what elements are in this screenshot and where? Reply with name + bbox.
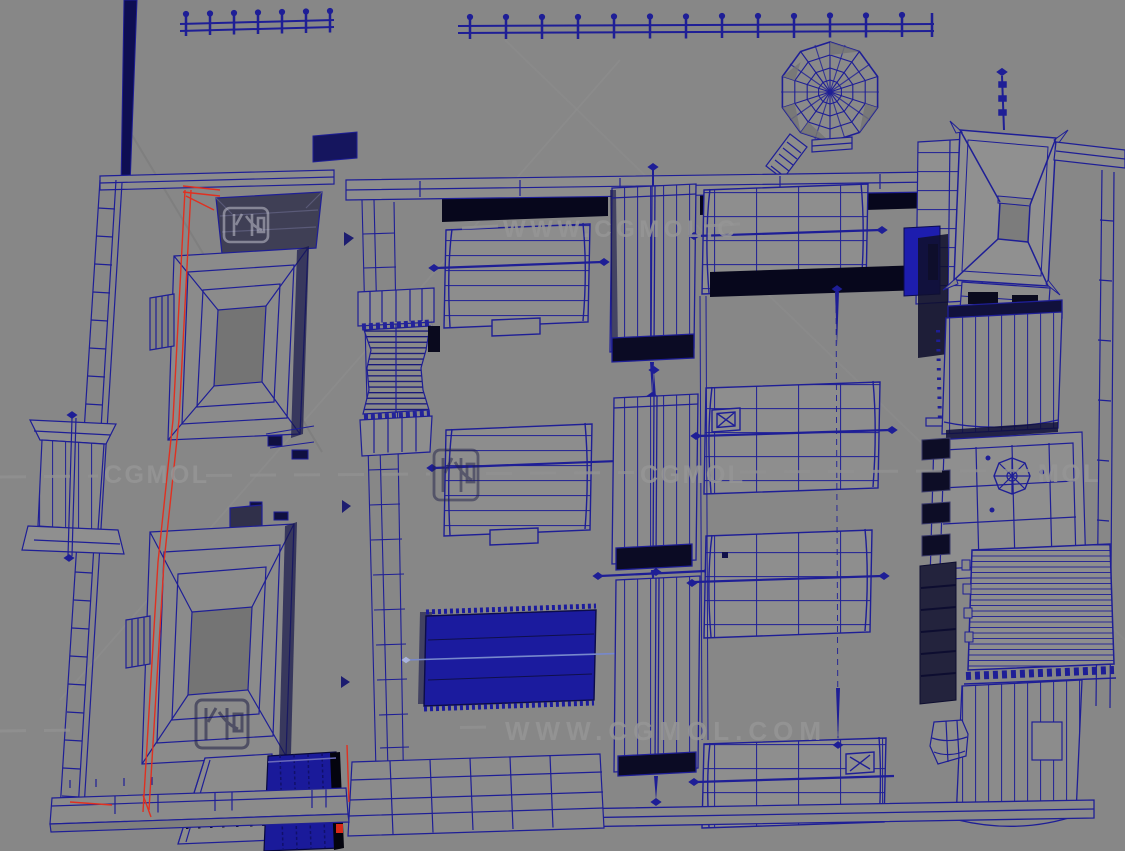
courtyard-building-lower[interactable] [126, 505, 297, 764]
porch-roof-upper[interactable] [216, 192, 322, 254]
octagon-feature [994, 458, 1030, 494]
east-hall-roof-3[interactable] [688, 529, 889, 638]
louver-roof[interactable] [962, 544, 1114, 670]
roof-bracket[interactable] [313, 132, 357, 162]
corner-turret[interactable] [930, 720, 968, 764]
3d-viewport[interactable]: WWW.CGMOL.C CGMOL CGMOL MOL WWW.CGMOL.CO… [0, 0, 1125, 851]
east-hall-roof-2[interactable] [692, 381, 897, 494]
roof-gate-box-2 [846, 752, 874, 774]
gable-roof-south[interactable] [614, 569, 700, 805]
small-block[interactable] [1032, 722, 1062, 760]
roof-gate-box [712, 408, 740, 432]
east-vertical-roof[interactable] [942, 300, 1062, 440]
dark-stair-stack [920, 562, 956, 704]
wireframe-scene[interactable]: WWW.CGMOL.C CGMOL CGMOL MOL WWW.CGMOL.CO… [0, 0, 1125, 851]
hall-roof-1[interactable] [430, 223, 609, 336]
umbrella-pavilion-roof[interactable] [781, 42, 879, 142]
south-steps-platform[interactable] [348, 754, 604, 836]
dark-column [918, 234, 948, 358]
